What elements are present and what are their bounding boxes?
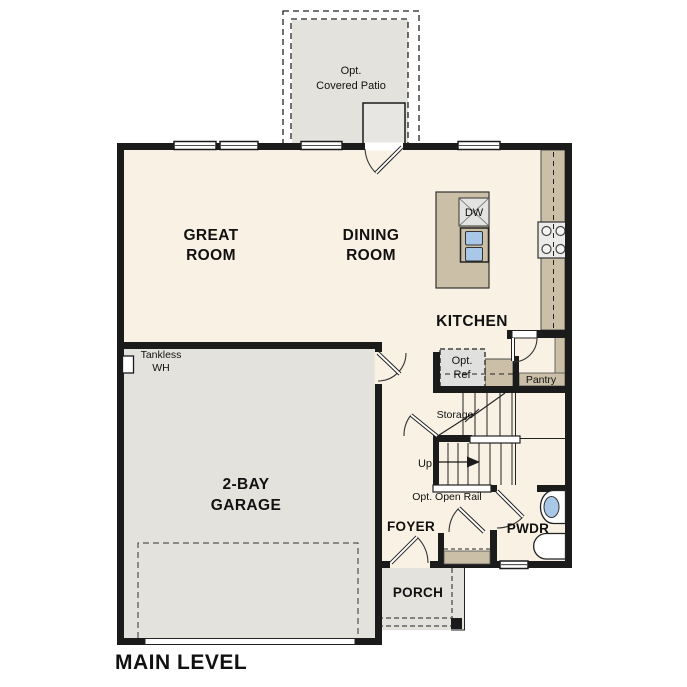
opt-ref-label-line1: Opt. — [452, 355, 473, 367]
porch-column — [451, 618, 462, 629]
wall-garage-top — [117, 342, 381, 349]
garage-area — [120, 346, 378, 641]
wall-ref-stub — [433, 352, 440, 393]
window-5-south — [500, 561, 528, 569]
up-label: Up — [418, 458, 432, 470]
wall-left — [117, 143, 124, 645]
storage-label: Storage — [437, 409, 474, 421]
wall-storage-bottom — [433, 435, 472, 442]
pwdr-label: PWDR — [507, 521, 549, 536]
sink-basin-top — [466, 232, 483, 246]
pantry-label: Pantry — [526, 374, 557, 386]
tankless-label-line2: WH — [152, 362, 170, 374]
great-room-label-line1: GREAT — [183, 227, 238, 244]
kitchen-label: KITCHEN — [436, 313, 508, 330]
window-3 — [301, 142, 342, 150]
dining-room-label-line1: DINING — [343, 227, 400, 244]
foyer-label: FOYER — [387, 519, 435, 534]
covered-patio: Opt. Covered Patio — [283, 11, 419, 147]
patio-landing — [363, 103, 405, 144]
wall-pwdr-top-stub — [491, 485, 497, 492]
window-2 — [220, 142, 258, 150]
garage-label-line1: 2-BAY — [222, 476, 269, 493]
closet-shelf — [444, 551, 490, 564]
toilet-lid — [544, 497, 559, 518]
great-room-label-line2: ROOM — [186, 247, 236, 264]
wall-stairs-left — [433, 442, 439, 486]
sink-basin-bottom — [466, 248, 483, 262]
window-4 — [458, 142, 500, 150]
garage-overhead-door — [145, 639, 355, 645]
tankless-label-line1: Tankless — [141, 349, 182, 361]
floor-plan-page: Opt. Covered Patio DW Opt. Ref — [0, 0, 687, 687]
dishwasher-label: DW — [465, 207, 484, 219]
stair-landing-rail — [470, 436, 520, 443]
foyer-closet — [444, 549, 490, 564]
main-level-title: MAIN LEVEL — [115, 651, 247, 674]
garage-label-line2: GARAGE — [211, 497, 281, 514]
wall-pantry-top — [536, 330, 572, 338]
wall-kitchen-bottom — [434, 386, 572, 393]
porch-label: PORCH — [393, 585, 443, 600]
wall-garage-right-upper — [375, 342, 382, 352]
floor-plan-svg: Opt. Covered Patio DW Opt. Ref — [0, 0, 687, 687]
powder-sink — [534, 534, 566, 560]
front-door-opening — [390, 561, 430, 568]
opt-ref-label-line2: Ref — [453, 369, 471, 381]
wall-garage-right-lower — [375, 384, 382, 645]
opt-open-rail-label: Opt. Open Rail — [412, 491, 481, 503]
wall-closet-left — [438, 533, 444, 566]
wall-pwdr-left — [490, 530, 497, 568]
patio-label-line2: Covered Patio — [316, 80, 386, 92]
dining-room-label-line2: ROOM — [346, 247, 396, 264]
patio-label-line1: Opt. — [341, 65, 362, 77]
window-1 — [174, 142, 216, 150]
tankless-wh-unit — [123, 356, 134, 373]
